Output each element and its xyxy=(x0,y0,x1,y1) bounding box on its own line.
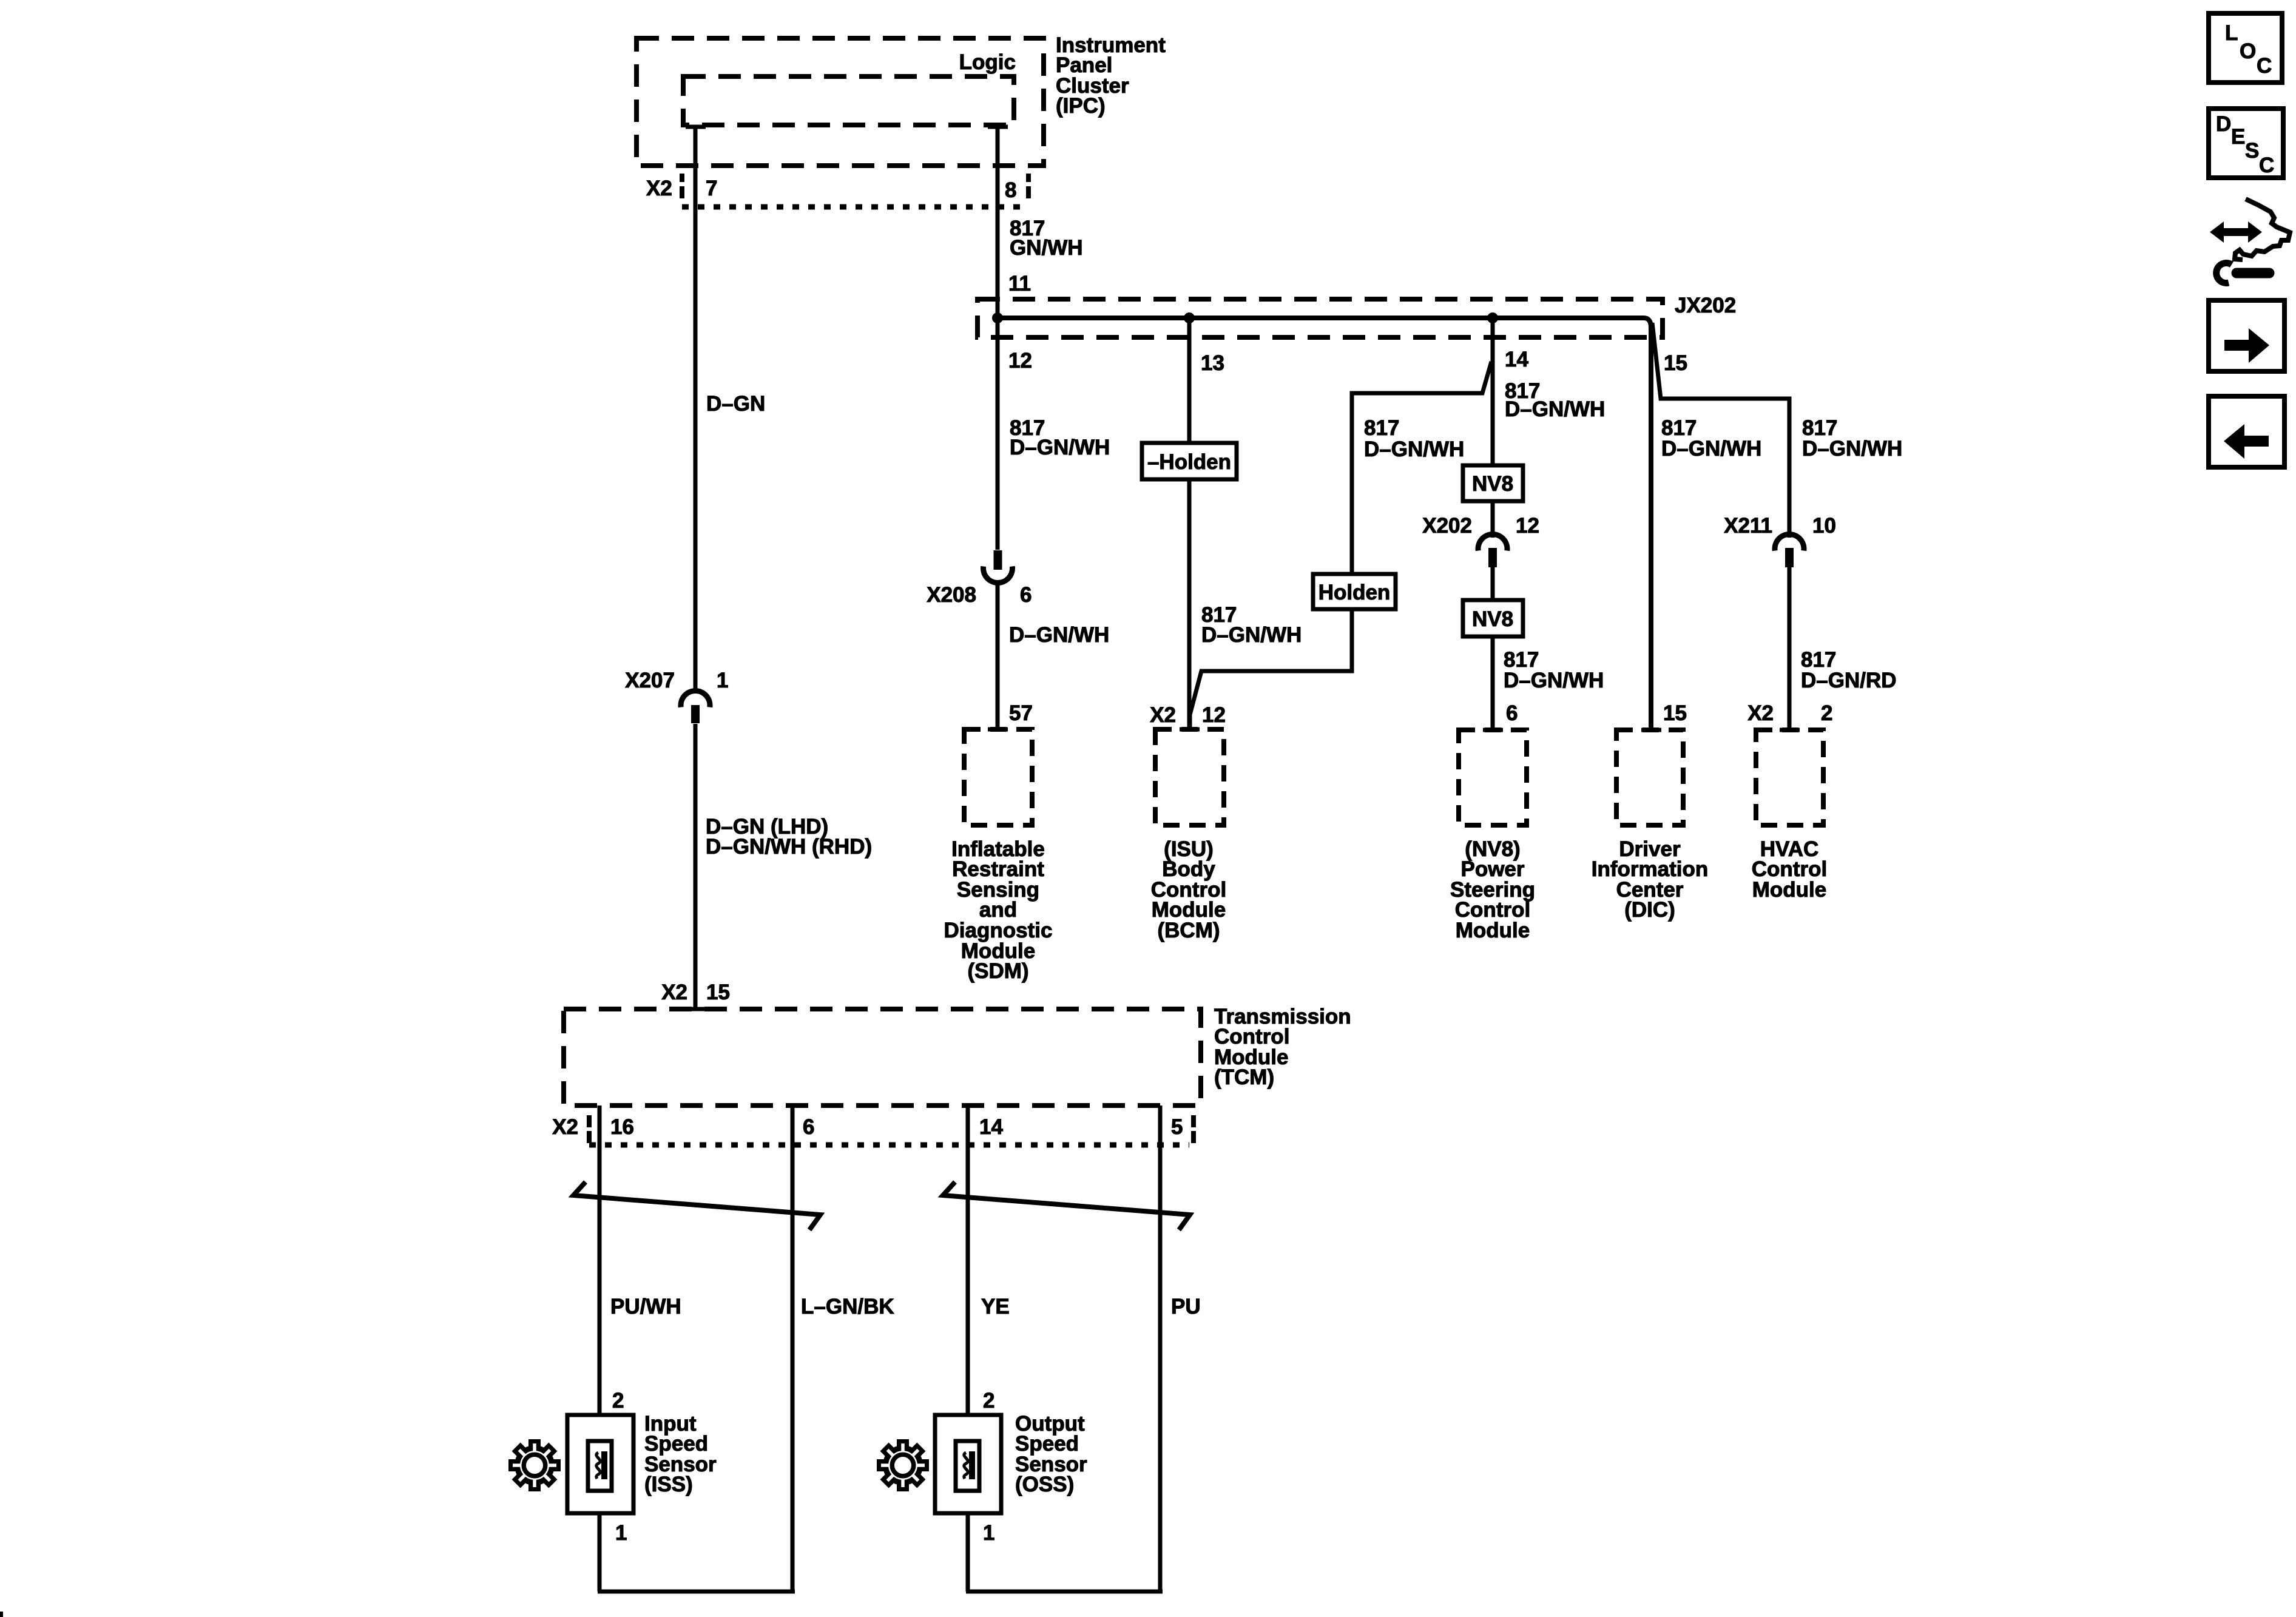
svg-text:D: D xyxy=(2216,112,2231,136)
svg-text:(DIC): (DIC) xyxy=(1624,898,1675,922)
svg-text:(IPC): (IPC) xyxy=(1056,94,1106,118)
svg-text:1: 1 xyxy=(983,1521,994,1545)
svg-text:PU: PU xyxy=(1171,1295,1201,1318)
svg-text:6: 6 xyxy=(1020,583,1032,607)
svg-text:(BCM): (BCM) xyxy=(1157,919,1220,942)
svg-text:8: 8 xyxy=(1005,178,1016,202)
svg-text:(ISS): (ISS) xyxy=(644,1473,693,1496)
svg-text:14: 14 xyxy=(1505,348,1528,371)
svg-text:11: 11 xyxy=(1008,272,1031,295)
svg-text:57: 57 xyxy=(1009,701,1033,725)
svg-text:Holden: Holden xyxy=(1319,581,1391,604)
svg-text:NV8: NV8 xyxy=(1472,472,1513,496)
svg-text:16: 16 xyxy=(610,1115,634,1139)
svg-text:Module: Module xyxy=(1456,919,1530,942)
svg-text:L: L xyxy=(2225,21,2238,45)
svg-text:D–GN/WH: D–GN/WH xyxy=(1009,623,1109,647)
svg-text:X2: X2 xyxy=(552,1115,578,1139)
svg-text:Logic: Logic xyxy=(959,50,1016,74)
svg-text:X2: X2 xyxy=(1747,701,1774,725)
svg-text:D–GN/WH: D–GN/WH xyxy=(1010,436,1110,459)
svg-text:1: 1 xyxy=(717,669,728,692)
svg-text:2: 2 xyxy=(612,1389,624,1413)
svg-text:6: 6 xyxy=(803,1115,814,1139)
svg-text:X2: X2 xyxy=(661,981,687,1004)
svg-text:X2: X2 xyxy=(646,177,672,200)
svg-text:6: 6 xyxy=(1506,701,1518,725)
svg-text:12: 12 xyxy=(1516,514,1539,538)
svg-text:O: O xyxy=(2240,39,2256,63)
svg-text:14: 14 xyxy=(979,1115,1003,1139)
svg-text:12: 12 xyxy=(1202,703,1226,727)
svg-text:(TCM): (TCM) xyxy=(1214,1065,1274,1089)
svg-text:(SDM): (SDM) xyxy=(967,959,1028,983)
svg-text:JX202: JX202 xyxy=(1675,294,1736,317)
svg-text:D–GN/WH (RHD): D–GN/WH (RHD) xyxy=(706,835,872,859)
svg-text:7: 7 xyxy=(706,177,717,200)
svg-text:GN/WH: GN/WH xyxy=(1010,236,1083,260)
svg-text:2: 2 xyxy=(983,1389,994,1413)
svg-text:15: 15 xyxy=(706,981,730,1004)
svg-text:L–GN/BK: L–GN/BK xyxy=(801,1295,894,1318)
svg-text:–Holden: –Holden xyxy=(1147,450,1231,474)
svg-text:2: 2 xyxy=(1821,701,1832,725)
svg-text:E: E xyxy=(2231,125,2245,149)
svg-text:10: 10 xyxy=(1812,514,1836,538)
svg-text:X202: X202 xyxy=(1422,514,1472,538)
svg-text:12: 12 xyxy=(1008,349,1032,373)
svg-text:13: 13 xyxy=(1201,351,1224,375)
svg-text:D–GN/WH: D–GN/WH xyxy=(1661,437,1761,461)
svg-text:D–GN/WH: D–GN/WH xyxy=(1201,623,1302,647)
svg-text:D–GN/WH: D–GN/WH xyxy=(1802,437,1902,461)
svg-text:X211: X211 xyxy=(1724,514,1772,538)
svg-text:1: 1 xyxy=(615,1521,627,1545)
svg-text:S: S xyxy=(2245,139,2259,163)
svg-text:C: C xyxy=(2257,54,2272,78)
svg-text:YE: YE xyxy=(981,1295,1010,1318)
svg-text:D–GN/WH: D–GN/WH xyxy=(1505,397,1605,421)
svg-text:C: C xyxy=(2259,154,2274,177)
svg-text:X208: X208 xyxy=(927,583,976,607)
svg-text:X207: X207 xyxy=(625,669,675,692)
svg-text:PU/WH: PU/WH xyxy=(610,1295,681,1318)
svg-text:D–GN: D–GN xyxy=(706,392,765,416)
svg-text:D–GN/WH: D–GN/WH xyxy=(1504,669,1604,692)
svg-text:817: 817 xyxy=(1364,416,1399,440)
svg-text:Module: Module xyxy=(1752,878,1826,902)
svg-text:15: 15 xyxy=(1664,351,1687,375)
svg-text:D–GN/RD: D–GN/RD xyxy=(1801,669,1897,692)
svg-text:NV8: NV8 xyxy=(1472,607,1513,631)
svg-text:(OSS): (OSS) xyxy=(1015,1473,1074,1496)
svg-text:X2: X2 xyxy=(1150,703,1176,727)
svg-text:D–GN/WH: D–GN/WH xyxy=(1364,437,1464,461)
svg-text:15: 15 xyxy=(1663,701,1687,725)
svg-text:5: 5 xyxy=(1171,1115,1183,1139)
